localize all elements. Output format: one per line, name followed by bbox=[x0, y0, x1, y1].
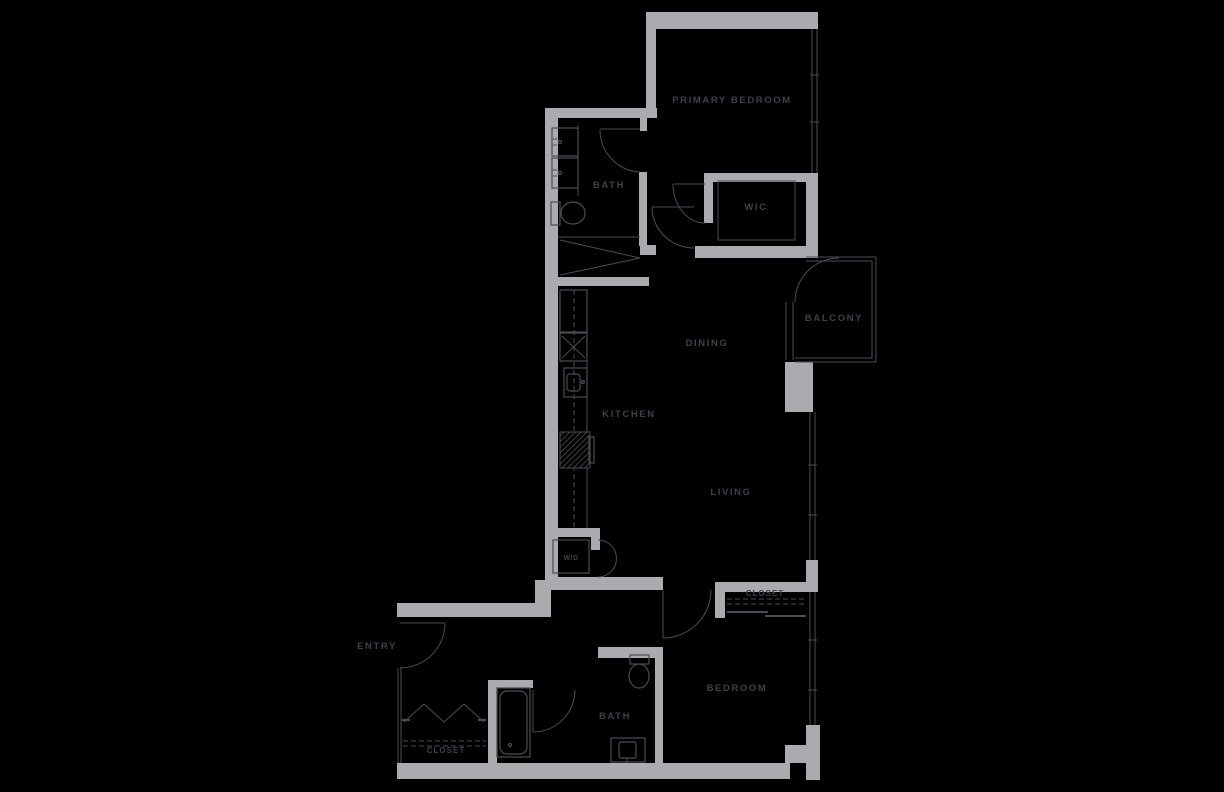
wall bbox=[704, 173, 713, 223]
wall bbox=[640, 245, 656, 255]
wall bbox=[640, 117, 647, 131]
wall bbox=[806, 560, 818, 592]
room-label-bath-lower: BATH bbox=[599, 711, 631, 722]
wall bbox=[548, 577, 663, 590]
window-living bbox=[808, 412, 817, 560]
wall bbox=[488, 680, 497, 763]
walls bbox=[397, 12, 820, 780]
room-label-living: LIVING bbox=[710, 487, 751, 498]
bathtub bbox=[497, 688, 530, 757]
wall bbox=[786, 248, 806, 258]
oven-icon bbox=[560, 432, 594, 468]
wall bbox=[397, 763, 790, 779]
floor-plan-canvas: PRIMARY BEDROOM BATH WIC BALCONY DINING … bbox=[0, 0, 1224, 792]
wall bbox=[785, 362, 813, 412]
bath-sink bbox=[611, 738, 645, 763]
bath-lower-door-swing bbox=[533, 690, 575, 732]
room-label-dining: DINING bbox=[686, 338, 729, 349]
balcony-outline bbox=[786, 257, 876, 362]
bath-upper-door-swing bbox=[600, 129, 640, 172]
wall bbox=[639, 172, 647, 246]
wall bbox=[646, 29, 656, 118]
room-label-wic: WIC bbox=[744, 202, 767, 213]
room-label-entry: ENTRY bbox=[357, 641, 397, 652]
bedroom-closet-doors bbox=[727, 599, 806, 616]
window-entry-side bbox=[398, 668, 401, 763]
window-bedroom bbox=[808, 592, 817, 725]
kitchen-counter bbox=[560, 290, 587, 528]
room-label-bath-upper: BATH bbox=[593, 180, 625, 191]
wall bbox=[488, 680, 533, 688]
wall bbox=[591, 528, 600, 550]
wall bbox=[806, 173, 818, 258]
wd-door-swing bbox=[598, 540, 617, 577]
room-label-primary-bedroom: PRIMARY BEDROOM bbox=[672, 95, 792, 106]
floor-plan: PRIMARY BEDROOM BATH WIC BALCONY DINING … bbox=[0, 0, 1224, 792]
wall bbox=[545, 277, 649, 286]
kitchen-sink bbox=[564, 368, 587, 397]
balcony-door-swing bbox=[795, 258, 839, 302]
room-label-bedroom: BEDROOM bbox=[707, 683, 768, 694]
wall bbox=[715, 582, 725, 618]
room-label-closet-entry: CLOSET bbox=[427, 746, 465, 755]
wall bbox=[545, 108, 657, 118]
bedroom-door-swing bbox=[663, 590, 711, 638]
entry-door-swing bbox=[400, 623, 445, 668]
room-label-closet-bedroom: CLOSET bbox=[746, 589, 784, 598]
primary-suite-door-swing bbox=[652, 207, 694, 248]
room-label-balcony: BALCONY bbox=[805, 313, 863, 324]
wic-door-swing bbox=[673, 184, 705, 223]
wall bbox=[397, 603, 551, 617]
doors bbox=[400, 129, 839, 732]
shower bbox=[558, 237, 640, 275]
wall bbox=[646, 12, 818, 29]
entry-closet-doors bbox=[402, 704, 486, 746]
room-label-wd: W/D bbox=[563, 555, 578, 562]
wall bbox=[806, 725, 820, 780]
room-label-kitchen: KITCHEN bbox=[602, 409, 655, 420]
wall bbox=[655, 647, 663, 763]
window-primary-bedroom bbox=[810, 29, 819, 173]
toilet-lower bbox=[629, 655, 649, 688]
